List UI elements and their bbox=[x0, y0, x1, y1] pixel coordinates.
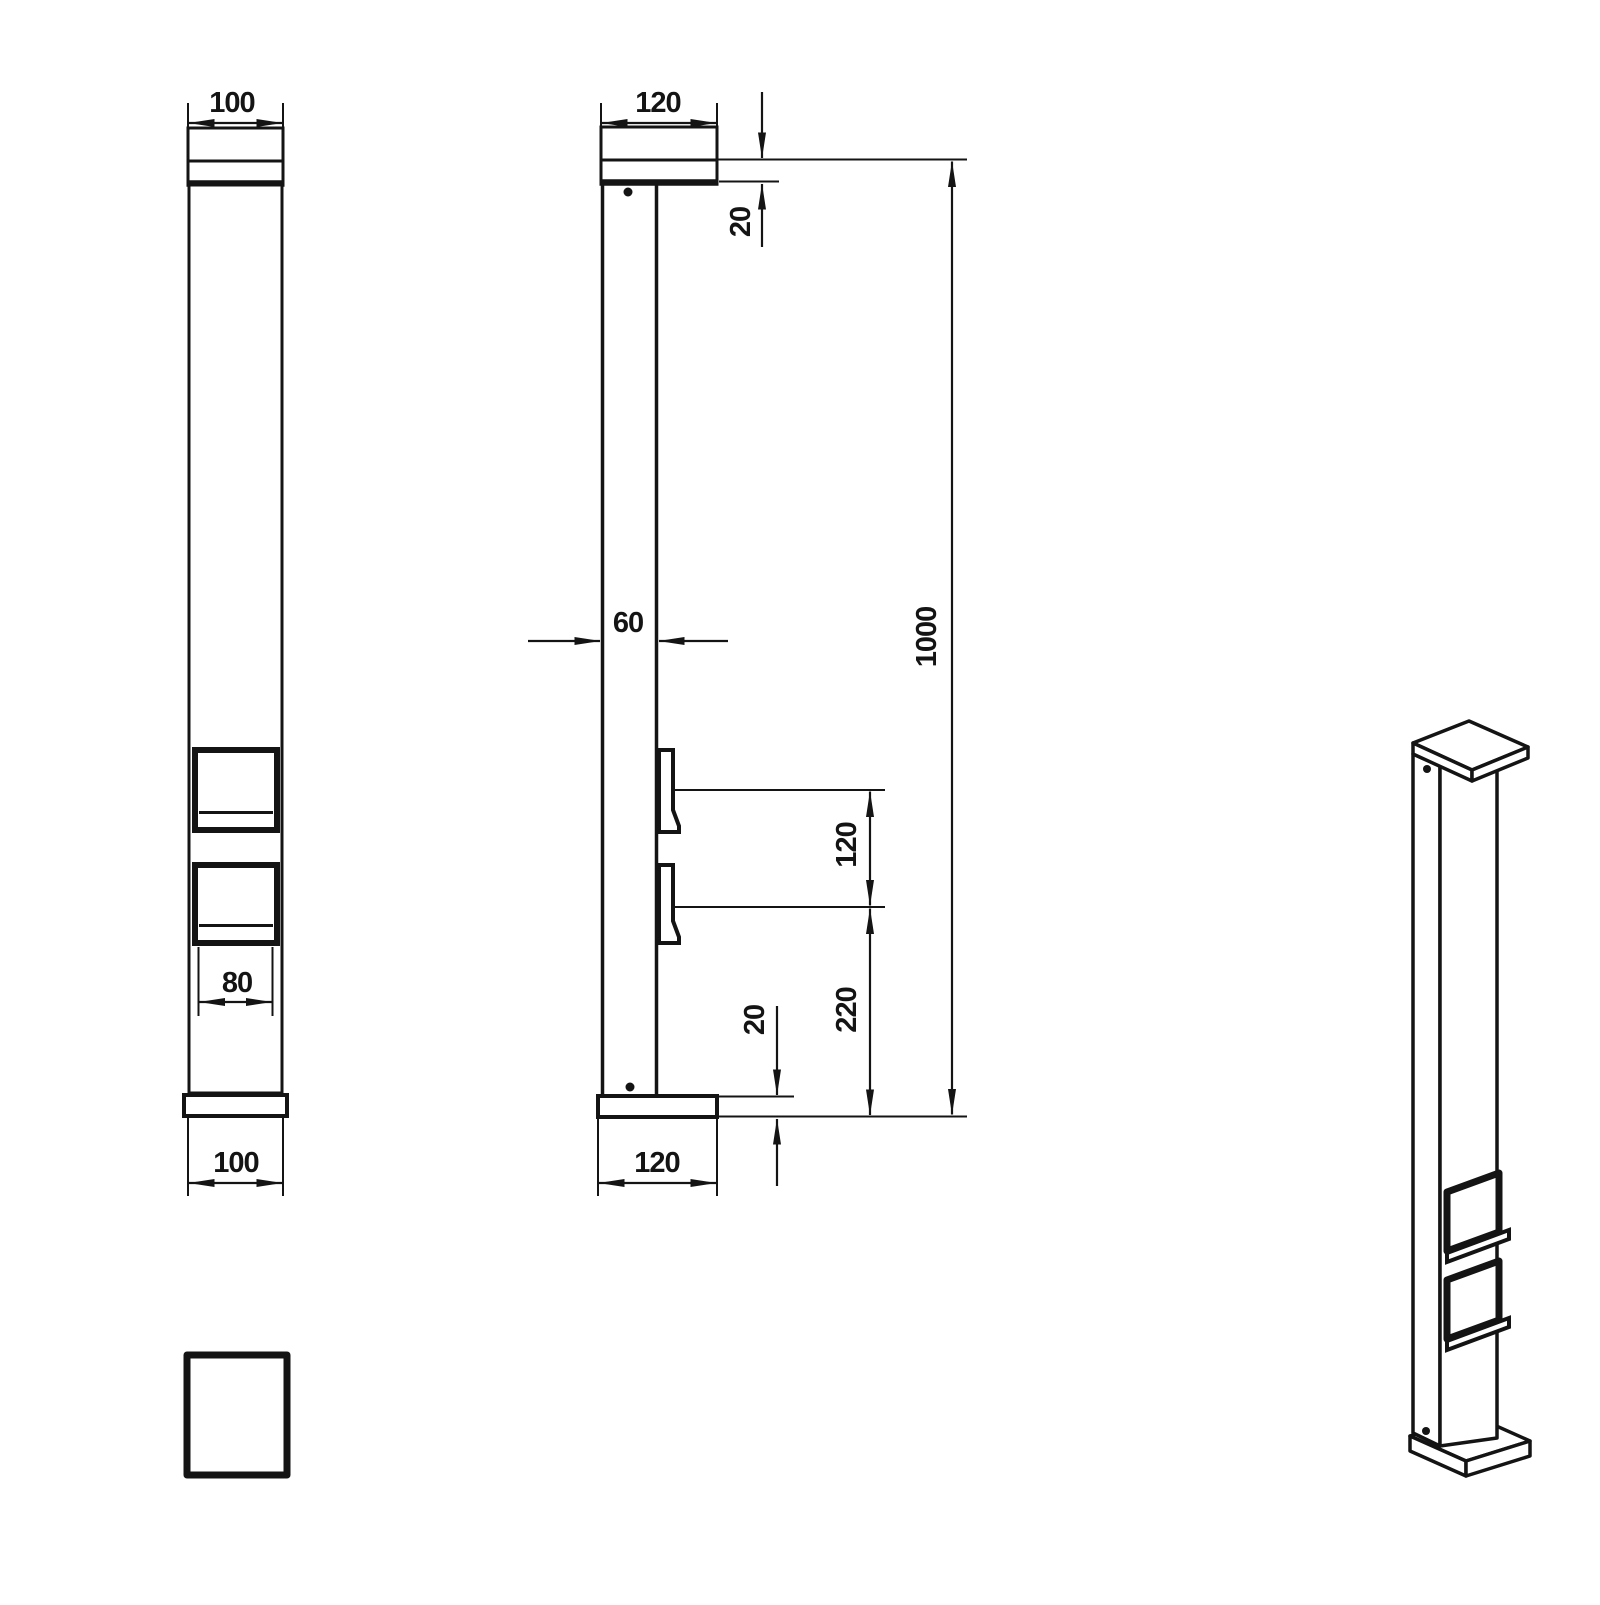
side-base-plate bbox=[598, 1096, 717, 1117]
dim-socket-to-base: 220 bbox=[831, 909, 870, 1116]
dim-front-bottom-width: 100 bbox=[188, 1118, 283, 1196]
iso-screw-dot-top bbox=[1423, 765, 1431, 773]
iso-screw-dot-bottom bbox=[1422, 1427, 1430, 1435]
dimension-label: 1000 bbox=[911, 607, 943, 668]
side-screw-dot-bottom bbox=[626, 1083, 635, 1092]
dimension-label: 80 bbox=[222, 967, 252, 999]
dim-total-height: 1000 bbox=[717, 162, 967, 1117]
side-socket-lower-profile bbox=[659, 865, 679, 943]
isometric-view bbox=[1410, 721, 1530, 1476]
dim-base-thickness: 20 bbox=[719, 1005, 794, 1186]
side-cap-skirt bbox=[601, 160, 717, 181]
front-pole-body bbox=[189, 185, 282, 1093]
front-socket-lower bbox=[195, 865, 277, 943]
dimension-label: 120 bbox=[635, 87, 680, 119]
side-view: 120 20 60 120 220 bbox=[528, 87, 967, 1196]
top-view-footprint bbox=[187, 1355, 287, 1475]
front-base-plate bbox=[184, 1095, 287, 1116]
front-socket-upper bbox=[195, 750, 277, 830]
front-cap-skirt bbox=[188, 161, 283, 182]
side-screw-dot-top bbox=[624, 188, 633, 197]
dimension-label: 100 bbox=[209, 87, 254, 119]
front-view: 100 80 100 bbox=[184, 87, 287, 1196]
dimension-label: 20 bbox=[739, 1005, 771, 1035]
side-cap-slab bbox=[601, 127, 717, 160]
side-pole-body bbox=[603, 184, 657, 1096]
drawing-sheet: 100 80 100 bbox=[0, 0, 1600, 1600]
dimension-label: 220 bbox=[831, 987, 863, 1032]
dim-socket-spacing: 120 bbox=[675, 790, 885, 907]
dim-front-top-width: 100 bbox=[188, 87, 283, 130]
dim-cap-overlap: 20 bbox=[717, 92, 967, 247]
technical-drawing-canvas: 100 80 100 bbox=[0, 0, 1600, 1600]
dimension-label: 120 bbox=[634, 1147, 679, 1179]
dim-pole-depth: 60 bbox=[528, 607, 728, 641]
dimension-label: 100 bbox=[213, 1147, 258, 1179]
dim-side-top-depth: 120 bbox=[601, 87, 717, 127]
dim-side-bottom-depth: 120 bbox=[598, 1119, 717, 1196]
dimension-label: 120 bbox=[831, 822, 863, 867]
iso-pole-left-face bbox=[1413, 754, 1440, 1446]
dimension-label: 20 bbox=[725, 207, 757, 237]
dimension-label: 60 bbox=[613, 607, 643, 639]
front-cap-slab bbox=[188, 128, 283, 161]
